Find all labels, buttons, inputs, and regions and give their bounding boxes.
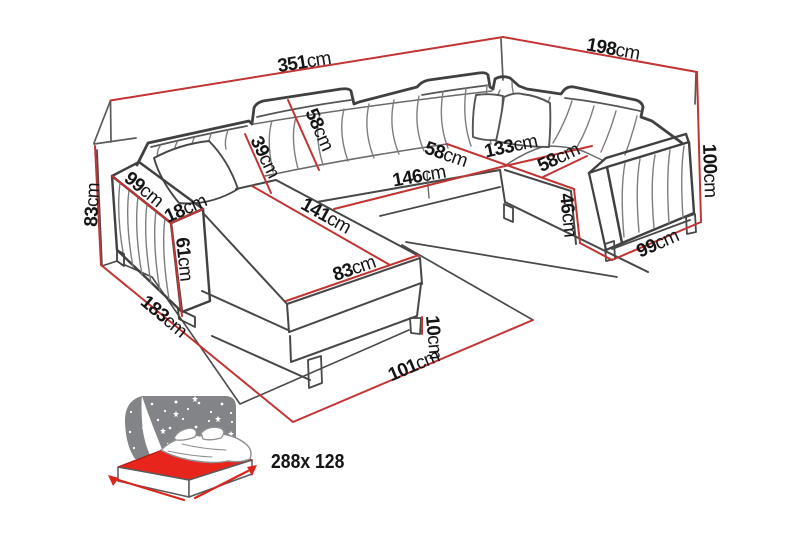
svg-text:10cm: 10cm [421, 315, 446, 360]
svg-text:83cm: 83cm [81, 183, 104, 228]
svg-text:100cm: 100cm [698, 143, 721, 197]
svg-text:288x 128: 288x 128 [271, 450, 344, 472]
